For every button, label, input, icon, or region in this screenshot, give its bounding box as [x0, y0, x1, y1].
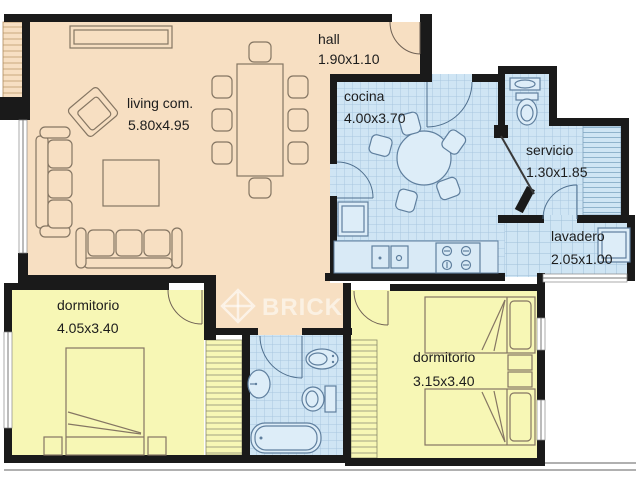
dining-chair-icon — [212, 109, 232, 131]
window-bedroom-left — [4, 332, 12, 428]
hall-dims: 1.90x1.10 — [318, 51, 380, 67]
dormitorio-right-label: dormitorio — [413, 349, 475, 365]
window-lavadero — [543, 274, 627, 282]
hand-basin-icon — [510, 78, 540, 90]
nightstand-icon — [508, 372, 532, 387]
nightstand-icon — [44, 437, 62, 455]
hall-label: hall — [318, 31, 340, 47]
dining-chair-icon — [288, 109, 308, 131]
living-label: living com. — [127, 95, 193, 111]
floor-plan-drawing: BRICK living com. 5.80x4.95 hall 1.90x1.… — [0, 0, 640, 480]
kitchen-counter-icon — [334, 241, 498, 273]
fridge-icon — [338, 202, 368, 236]
bidet-icon — [306, 349, 338, 369]
washbasin-icon — [248, 370, 270, 398]
dining-chair-icon — [288, 142, 308, 164]
servicio-dims: 1.30x1.85 — [526, 164, 588, 180]
watermark-text: BRICK — [262, 294, 343, 321]
toilet-icon — [302, 386, 336, 412]
window-living-left — [19, 120, 27, 253]
lavadero-label: lavadero — [551, 228, 605, 244]
wardrobe-right-icon — [351, 340, 377, 458]
cocina-label: cocina — [344, 88, 385, 104]
sofa-large-icon — [36, 127, 72, 237]
cocina-dims: 4.00x3.70 — [344, 110, 406, 126]
wardrobe-left-icon — [206, 340, 242, 455]
bathtub-icon — [251, 423, 321, 453]
sofa-small-icon — [76, 228, 182, 268]
nightstand-icon — [148, 437, 166, 455]
stairs-icon — [583, 126, 621, 215]
dormitorio-right-dims: 3.15x3.40 — [413, 373, 475, 389]
living-dims: 5.80x4.95 — [128, 117, 190, 133]
single-bed-icon — [425, 297, 535, 353]
dining-chair-icon — [288, 76, 308, 98]
lavadero-dims: 2.05x1.00 — [551, 251, 613, 267]
sideboard-icon — [70, 26, 172, 48]
window-bedroom-right-2 — [537, 400, 545, 440]
window-bedroom-right-1 — [537, 318, 545, 350]
dormitorio-left-dims: 4.05x3.40 — [57, 320, 119, 336]
single-bed-icon — [425, 389, 535, 445]
nightstand-icon — [508, 355, 532, 370]
dining-chair-icon — [249, 42, 271, 62]
toilet-icon — [516, 93, 538, 125]
dining-chair-icon — [212, 76, 232, 98]
dining-chair-icon — [212, 142, 232, 164]
double-bed-icon — [66, 348, 144, 455]
dining-chair-icon — [249, 178, 271, 198]
servicio-label: servicio — [526, 142, 574, 158]
dormitorio-left-label: dormitorio — [57, 297, 119, 313]
floor-plan: BRICK living com. 5.80x4.95 hall 1.90x1.… — [0, 0, 640, 480]
